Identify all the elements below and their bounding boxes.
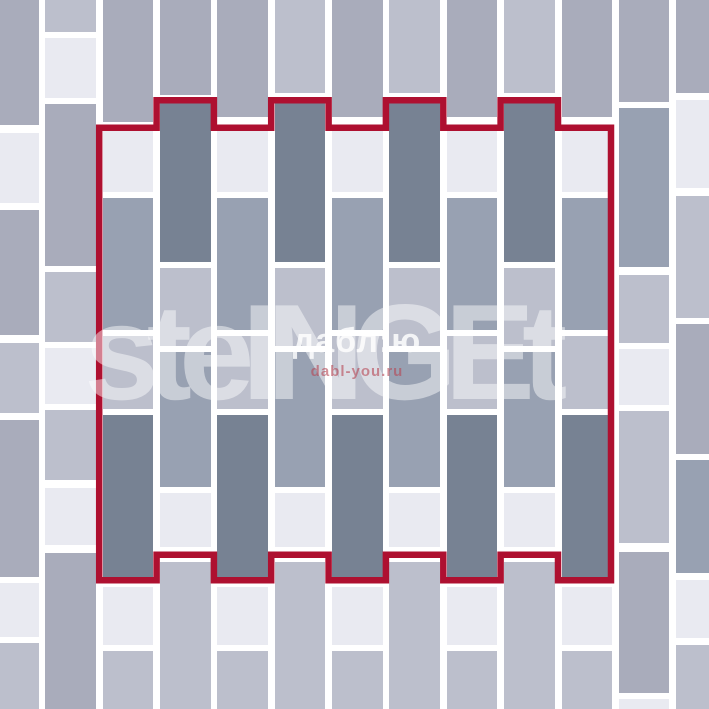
brick [45, 38, 96, 98]
brick [45, 104, 96, 266]
brick [619, 275, 670, 343]
brick [504, 352, 555, 487]
brick [160, 0, 211, 95]
brick [619, 411, 670, 543]
brick [332, 198, 383, 330]
brick [103, 587, 154, 645]
brick [447, 336, 498, 409]
brick [160, 562, 211, 709]
brick [332, 0, 383, 117]
brick [562, 131, 613, 192]
brick [0, 0, 39, 125]
brick [619, 552, 670, 693]
brick [562, 587, 613, 645]
brick [217, 587, 268, 645]
brick [504, 0, 555, 93]
brick [504, 562, 555, 709]
brick [676, 100, 709, 188]
brick [0, 210, 39, 335]
brick [562, 651, 613, 709]
brick [103, 415, 154, 577]
brick [0, 343, 39, 413]
brick [447, 0, 498, 117]
brick [389, 562, 440, 709]
brick [217, 131, 268, 192]
brick [562, 198, 613, 330]
brick [619, 699, 670, 709]
brick [0, 133, 39, 203]
brick [389, 268, 440, 346]
brick [389, 352, 440, 487]
brick [332, 336, 383, 409]
paving-scheme: steINGEt дабл:ю dabl-you.ru [0, 0, 709, 709]
brick [676, 460, 709, 573]
brick [45, 0, 96, 32]
brick [217, 415, 268, 577]
brick [389, 0, 440, 93]
brick [103, 336, 154, 409]
brick [619, 349, 670, 405]
brick [332, 587, 383, 645]
brick [275, 352, 326, 487]
brick-field [0, 0, 709, 709]
brick [619, 108, 670, 267]
brick [562, 336, 613, 409]
brick [103, 131, 154, 192]
brick [504, 268, 555, 346]
brick [0, 583, 39, 637]
brick [45, 553, 96, 709]
brick [676, 0, 709, 93]
brick [676, 645, 709, 709]
brick [447, 198, 498, 330]
brick [447, 587, 498, 645]
brick [217, 336, 268, 409]
brick [160, 493, 211, 547]
brick [160, 352, 211, 487]
brick [332, 651, 383, 709]
brick [332, 415, 383, 577]
brick [45, 348, 96, 404]
brick [562, 415, 613, 577]
brick [217, 198, 268, 330]
brick [0, 420, 39, 577]
brick [275, 562, 326, 709]
brick [275, 0, 326, 93]
brick [217, 651, 268, 709]
brick [676, 324, 709, 454]
brick [160, 268, 211, 346]
brick [332, 131, 383, 192]
brick [389, 103, 440, 262]
brick [447, 131, 498, 192]
brick [275, 493, 326, 547]
brick [103, 198, 154, 330]
brick [103, 651, 154, 709]
brick [45, 272, 96, 342]
brick [447, 651, 498, 709]
brick [103, 0, 154, 122]
brick [562, 0, 613, 117]
brick [45, 410, 96, 480]
brick [160, 103, 211, 262]
brick [504, 493, 555, 547]
brick [676, 196, 709, 318]
brick [275, 268, 326, 346]
brick [619, 0, 670, 102]
brick [504, 103, 555, 262]
brick [447, 415, 498, 577]
brick [389, 493, 440, 547]
brick [676, 580, 709, 638]
brick [45, 488, 96, 545]
brick [0, 643, 39, 709]
brick [275, 103, 326, 262]
brick [217, 0, 268, 117]
